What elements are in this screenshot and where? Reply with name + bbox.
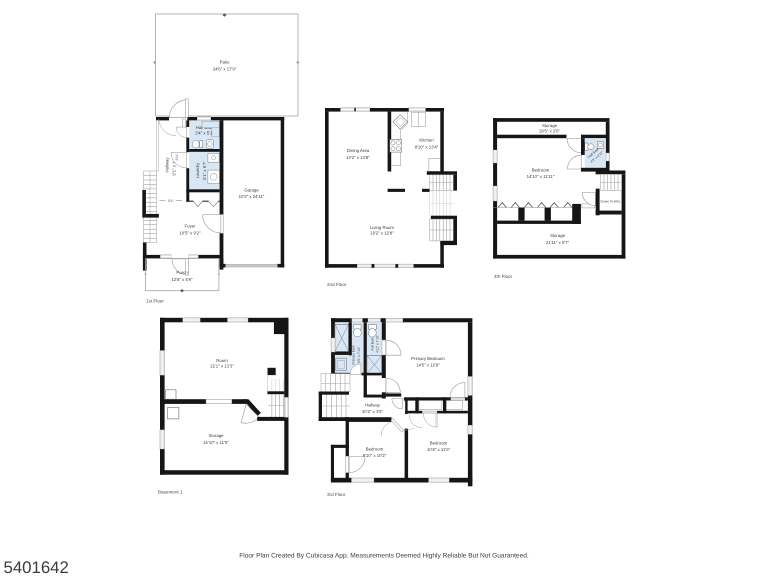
svg-text:4'11" x 7'10": 4'11" x 7'10"	[376, 334, 380, 353]
svg-text:19'2" x 12'8": 19'2" x 12'8"	[370, 231, 394, 236]
svg-text:Primary Bath: Primary Bath	[352, 345, 356, 364]
svg-text:21'11" x 5'7": 21'11" x 5'7"	[546, 240, 570, 245]
svg-text:Bedroom: Bedroom	[430, 441, 448, 446]
svg-text:5'1" x 6'7": 5'1" x 6'7"	[202, 161, 207, 180]
svg-text:Primary Bedroom: Primary Bedroom	[411, 356, 445, 361]
svg-text:24'6" x 17'9": 24'6" x 17'9"	[213, 67, 237, 72]
svg-text:Living Room: Living Room	[370, 225, 394, 230]
svg-text:Storage: Storage	[208, 433, 224, 438]
svg-text:Storage: Storage	[542, 123, 558, 128]
svg-text:10'2" x 3'5": 10'2" x 3'5"	[362, 409, 384, 414]
svg-text:Laundry: Laundry	[195, 162, 200, 178]
svg-text:Hallway: Hallway	[365, 403, 381, 408]
svg-text:Storage: Storage	[550, 233, 566, 238]
svg-text:10'8" x 11'6": 10'8" x 11'6"	[427, 447, 451, 452]
svg-text:14'5" x 12'8": 14'5" x 12'8"	[416, 363, 440, 368]
svg-text:5401642: 5401642	[4, 558, 69, 576]
svg-text:Room: Room	[216, 358, 228, 363]
svg-text:Garage: Garage	[244, 187, 259, 192]
svg-text:Dining Area: Dining Area	[347, 148, 370, 153]
svg-text:8'10" x 13'4": 8'10" x 13'4"	[415, 145, 439, 150]
svg-text:5'1": 5'1"	[168, 199, 174, 203]
svg-text:Hallway: Hallway	[165, 157, 170, 173]
svg-text:10'2" x 13'8": 10'2" x 13'8"	[346, 155, 370, 160]
svg-text:Full Bath: Full Bath	[370, 337, 374, 350]
svg-text:10'5" x 9'2": 10'5" x 9'2"	[179, 231, 201, 236]
svg-text:Basement 1: Basement 1	[158, 490, 183, 495]
svg-text:12'8" x 5'9": 12'8" x 5'9"	[171, 277, 193, 282]
svg-text:Foyer: Foyer	[185, 224, 197, 229]
svg-text:4th Floor: 4th Floor	[494, 274, 513, 279]
svg-text:2nd Floor: 2nd Floor	[327, 282, 347, 287]
svg-text:Bedroom: Bedroom	[366, 447, 384, 452]
svg-text:3rd Floor: 3rd Floor	[327, 492, 346, 497]
svg-text:Kitchen: Kitchen	[419, 138, 434, 143]
svg-text:3'4" x 5'1": 3'4" x 5'1"	[195, 130, 214, 135]
svg-text:Down To Attic: Down To Attic	[601, 199, 621, 203]
svg-text:19'5" x 2'6": 19'5" x 2'6"	[539, 129, 561, 134]
svg-text:16'10" x 11'5": 16'10" x 11'5"	[203, 440, 229, 445]
svg-text:Patio: Patio	[220, 60, 230, 65]
svg-text:14'10" x 11'11": 14'10" x 11'11"	[527, 174, 555, 179]
svg-text:1st Floor: 1st Floor	[146, 299, 164, 304]
svg-text:Floor Plan Created By Cubicasa: Floor Plan Created By Cubicasa App. Meas…	[239, 553, 529, 560]
svg-text:10'2" x 24'11": 10'2" x 24'11"	[239, 194, 265, 199]
svg-text:21'1" x 13'3": 21'1" x 13'3"	[210, 364, 234, 369]
svg-text:9'10" x 10'2": 9'10" x 10'2"	[363, 453, 387, 458]
svg-text:Bedroom: Bedroom	[532, 168, 550, 173]
svg-text:5'5" x 7'10": 5'5" x 7'10"	[357, 346, 361, 363]
svg-text:2'11": 2'11"	[175, 153, 179, 161]
svg-text:Porch: Porch	[176, 270, 188, 275]
